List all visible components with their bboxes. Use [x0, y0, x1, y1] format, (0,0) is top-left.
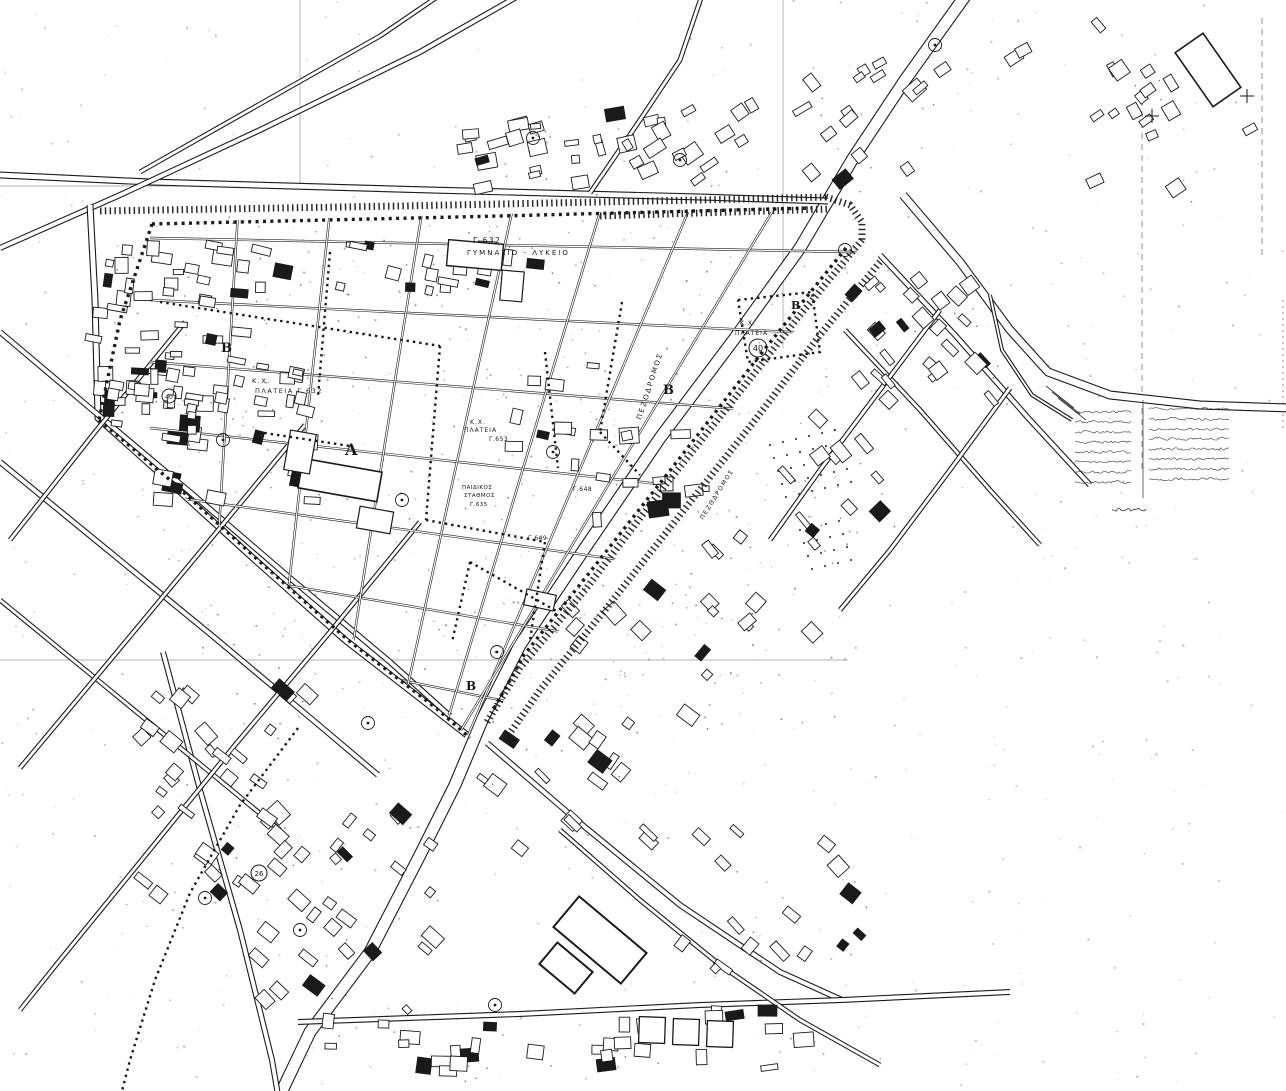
town-plan-map: Γ.632ΓΥΜΝΑΣΙΟ - ΛΥΚΕΙΟΚ.Χ.ΠΛΑΤΕΙΑ Γ.632Κ…: [0, 0, 1286, 1091]
map-label: Κ.Χ.: [740, 320, 756, 327]
map-label: Κ.Χ.: [470, 419, 486, 426]
map-label: Γ.648: [573, 486, 592, 493]
zone-letter-label: B: [221, 341, 232, 356]
zone-letter-label: A: [344, 440, 358, 459]
map-label: ΠΑΙΔΙΚΟΣ: [462, 485, 492, 491]
map-label: ΠΛΑΤΕΙΑ Γ.632: [255, 387, 323, 395]
map-label: ΣΤΑΘΜΟΣ: [464, 493, 495, 499]
circled-block-number: 40: [165, 394, 173, 401]
map-label: Γ.653: [489, 436, 508, 443]
map-label: Γ.632: [473, 236, 501, 245]
map-label: Κ.Χ.: [252, 377, 271, 385]
map-label: ΓΥΜΝΑΣΙΟ - ΛΥΚΕΙΟ: [467, 249, 570, 257]
zone-letter-label: B: [466, 679, 476, 693]
zone-letter-label: B: [791, 299, 800, 312]
zone-letter-label: B: [663, 383, 674, 398]
circled-block-number: 26: [255, 870, 264, 878]
map-label: ΠΛΑΤΕΙΑ: [464, 427, 497, 434]
circled-block-number: 40: [753, 344, 763, 353]
map-label: ΠΛΑΤΕΙΑ: [735, 330, 768, 337]
map-label: Γ.635: [470, 502, 488, 508]
scanned-map-page: Γ.632ΓΥΜΝΑΣΙΟ - ΛΥΚΕΙΟΚ.Χ.ΠΛΑΤΕΙΑ Γ.632Κ…: [0, 0, 1286, 1091]
map-label: Γ.649: [528, 535, 547, 542]
